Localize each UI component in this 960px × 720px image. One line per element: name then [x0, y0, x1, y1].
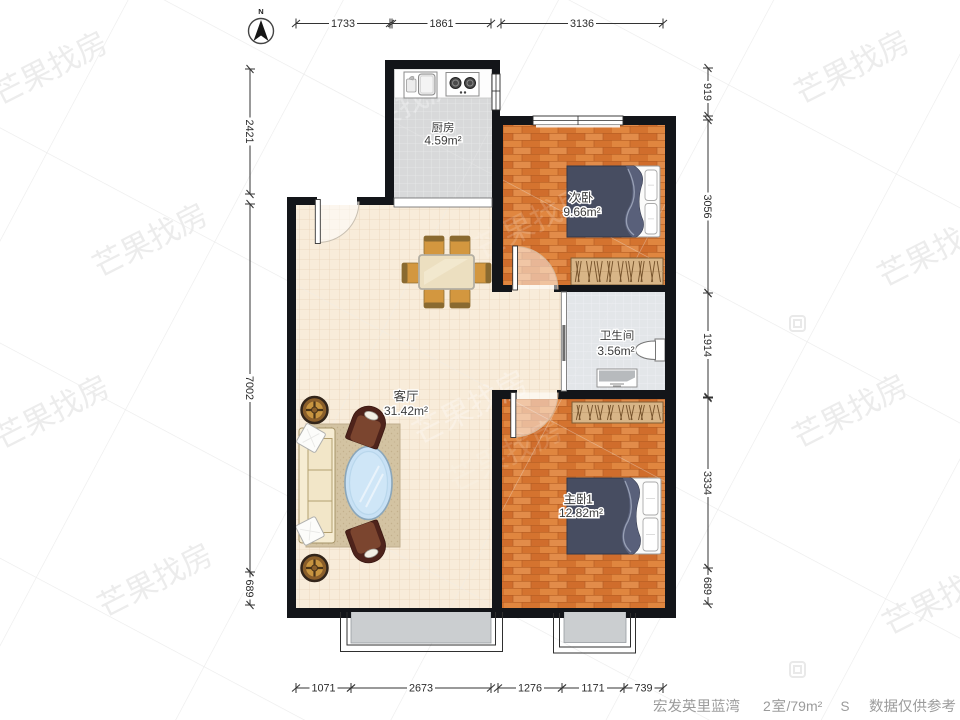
svg-text:31.42m²: 31.42m² [384, 404, 428, 418]
svg-text:2673: 2673 [409, 683, 433, 695]
svg-text:2: 2 [763, 698, 771, 714]
svg-text:3334: 3334 [701, 471, 713, 495]
svg-text:2421: 2421 [243, 119, 255, 143]
svg-text:739: 739 [634, 683, 652, 695]
svg-text:4.59m²: 4.59m² [424, 134, 461, 148]
svg-text:1171: 1171 [581, 683, 604, 695]
svg-text:N: N [258, 7, 263, 16]
svg-text:7002: 7002 [243, 376, 255, 400]
svg-text:12.82m²: 12.82m² [559, 506, 603, 520]
svg-text:1276: 1276 [518, 683, 542, 695]
svg-text:1733: 1733 [331, 18, 355, 30]
svg-text:689: 689 [701, 577, 713, 595]
svg-text:1071: 1071 [311, 683, 335, 695]
svg-text:689: 689 [243, 579, 255, 597]
svg-text:9.66m²: 9.66m² [563, 205, 600, 219]
svg-text:S: S [840, 699, 849, 714]
svg-text:3136: 3136 [570, 18, 594, 30]
svg-text:3056: 3056 [701, 194, 713, 218]
svg-text:1914: 1914 [701, 333, 713, 357]
svg-text:1: 1 [586, 493, 593, 507]
svg-text:1861: 1861 [429, 18, 453, 30]
svg-text:/79m²: /79m² [787, 698, 823, 714]
svg-text:919: 919 [701, 83, 713, 101]
svg-text:3.56m²: 3.56m² [597, 344, 634, 358]
